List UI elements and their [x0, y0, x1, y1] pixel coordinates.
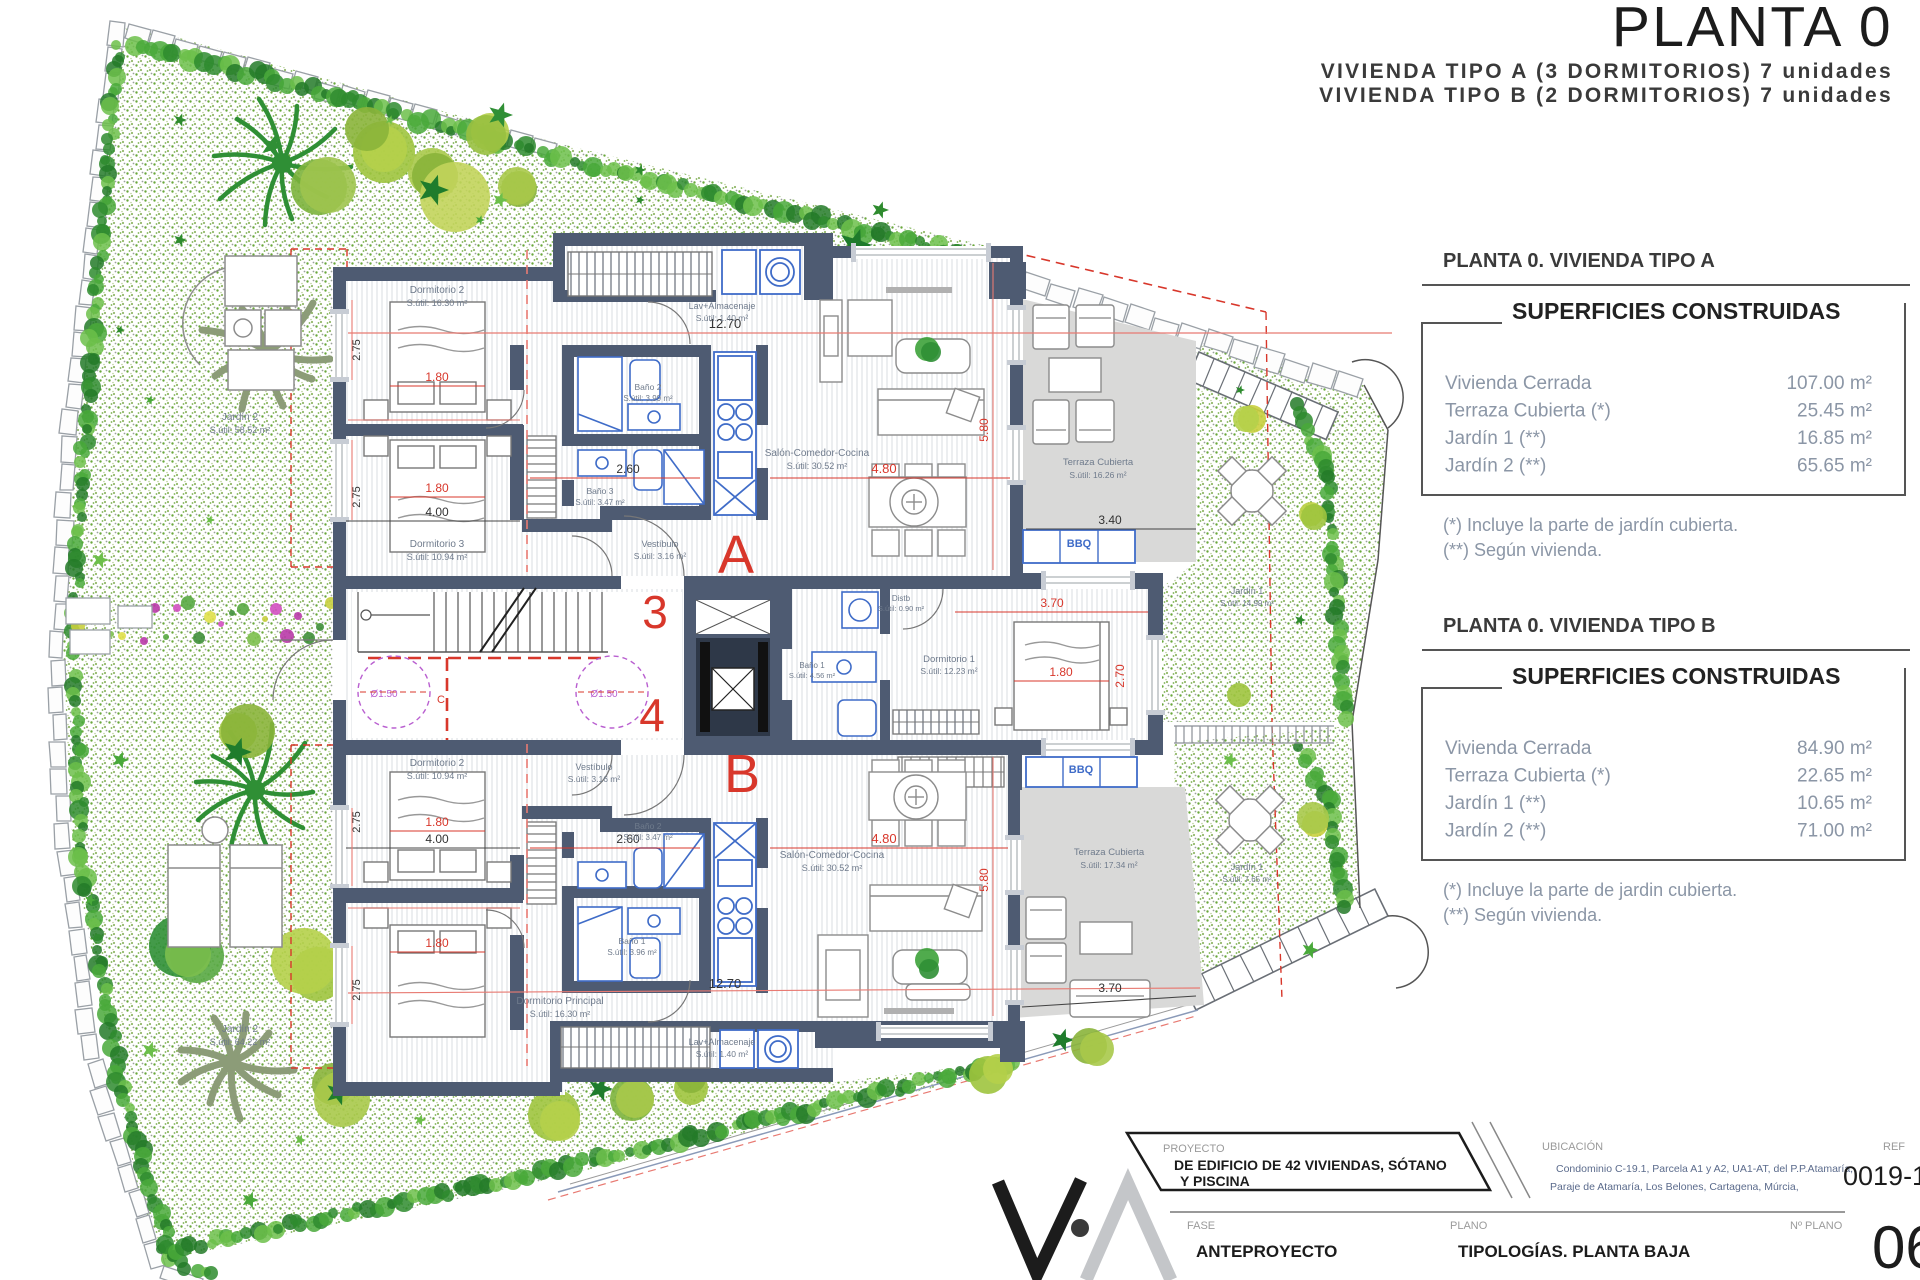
- svg-text:VIVIENDA TIPO A (3 DORMITORIOS: VIVIENDA TIPO A (3 DORMITORIOS) 7 unidad…: [1321, 60, 1893, 83]
- svg-text:2.60: 2.60: [616, 462, 640, 476]
- svg-text:Lav+Almacenaje: Lav+Almacenaje: [689, 301, 756, 311]
- svg-text:PLANTA 0. VIVIENDA TIPO B: PLANTA 0. VIVIENDA TIPO B: [1443, 615, 1716, 637]
- svg-text:3.70: 3.70: [1040, 596, 1064, 610]
- svg-text:A: A: [718, 525, 754, 585]
- svg-text:Vivienda Cerrada: Vivienda Cerrada: [1445, 373, 1592, 394]
- svg-text:VIVIENDA TIPO B (2 DORMITORIOS: VIVIENDA TIPO B (2 DORMITORIOS) 7 unidad…: [1319, 84, 1893, 107]
- svg-text:S.útil: 16.30 m²: S.útil: 16.30 m²: [407, 298, 468, 308]
- svg-text:SUPERFICIES CONSTRUIDAS: SUPERFICIES CONSTRUIDAS: [1512, 298, 1840, 324]
- svg-text:2.75: 2.75: [351, 811, 363, 832]
- svg-text:Jardín 2 (**): Jardín 2 (**): [1445, 821, 1546, 842]
- svg-text:Salón-Comedor-Cocina: Salón-Comedor-Cocina: [765, 448, 870, 459]
- svg-text:(**) Según vivienda.: (**) Según vivienda.: [1443, 540, 1602, 560]
- svg-text:S.útil: 3.99 m²: S.útil: 3.99 m²: [623, 394, 673, 403]
- svg-text:BBQ: BBQ: [1067, 538, 1092, 550]
- svg-text:S.útil: 3.47 m²: S.útil: 3.47 m²: [575, 498, 625, 507]
- svg-text:BBQ: BBQ: [1069, 764, 1094, 776]
- svg-text:S.útil: 16.26 m²: S.útil: 16.26 m²: [1069, 470, 1126, 480]
- svg-text:S.útil: 3.47 m²: S.útil: 3.47 m²: [623, 833, 673, 842]
- svg-text:Y PISCINA: Y PISCINA: [1180, 1173, 1250, 1189]
- svg-text:2.70: 2.70: [1113, 664, 1127, 688]
- svg-text:Terraza Cubierta: Terraza Cubierta: [1074, 847, 1145, 858]
- svg-text:S.útil: 16.30 m²: S.útil: 16.30 m²: [530, 1009, 591, 1019]
- svg-text:S.útil: 1.40 m²: S.útil: 1.40 m²: [696, 1049, 749, 1059]
- svg-text:S.útil: 12.23 m²: S.útil: 12.23 m²: [920, 666, 977, 676]
- svg-text:S.útil: 3.16 m²: S.útil: 3.16 m²: [568, 774, 621, 784]
- svg-text:Baño 1: Baño 1: [799, 661, 825, 670]
- svg-text:PLANTA 0: PLANTA 0: [1612, 0, 1893, 59]
- svg-text:C: C: [437, 694, 445, 706]
- svg-text:(**) Según vivienda.: (**) Según vivienda.: [1443, 905, 1602, 925]
- svg-text:S.útil: 7.65 m²: S.útil: 7.65 m²: [1222, 875, 1272, 884]
- svg-text:3.40: 3.40: [1098, 513, 1122, 527]
- svg-text:4.00: 4.00: [425, 505, 449, 519]
- svg-text:Dormitorio Principal: Dormitorio Principal: [516, 996, 603, 1007]
- svg-text:TIPOLOGÍAS. PLANTA BAJA: TIPOLOGÍAS. PLANTA BAJA: [1458, 1242, 1690, 1261]
- svg-text:Jardín 1: Jardín 1: [1231, 862, 1264, 872]
- svg-text:84.90 m²: 84.90 m²: [1797, 738, 1872, 759]
- svg-text:2.75: 2.75: [351, 339, 363, 360]
- svg-text:Vestíbulo: Vestíbulo: [641, 539, 678, 549]
- svg-text:(*) Incluye la parte de jardí: (*) Incluye la parte de jardín cubierta.: [1443, 515, 1738, 535]
- svg-text:(*) Incluye la parte de jardin: (*) Incluye la parte de jardin cubierta.: [1443, 880, 1737, 900]
- svg-text:Lav+Almacenaje: Lav+Almacenaje: [689, 1037, 756, 1047]
- svg-text:5.80: 5.80: [977, 418, 991, 442]
- svg-text:3: 3: [642, 586, 668, 638]
- svg-text:16.85 m²: 16.85 m²: [1797, 428, 1872, 449]
- svg-text:Baño 2: Baño 2: [635, 382, 662, 392]
- svg-text:Nº PLANO: Nº PLANO: [1790, 1220, 1843, 1232]
- svg-text:S.útil: 17.34 m²: S.útil: 17.34 m²: [1080, 860, 1137, 870]
- svg-text:S.útil: 30.52 m²: S.útil: 30.52 m²: [802, 863, 863, 873]
- svg-text:22.65 m²: 22.65 m²: [1797, 766, 1872, 787]
- svg-text:4.00: 4.00: [425, 832, 449, 846]
- svg-text:Dormitorio 1: Dormitorio 1: [923, 654, 975, 665]
- svg-text:B: B: [724, 744, 760, 804]
- svg-text:ANTEPROYECTO: ANTEPROYECTO: [1196, 1242, 1337, 1261]
- svg-text:5.80: 5.80: [977, 868, 991, 892]
- svg-text:4.80: 4.80: [871, 461, 896, 476]
- svg-text:1.80: 1.80: [425, 815, 449, 829]
- svg-text:Jardín 1 (**): Jardín 1 (**): [1445, 428, 1546, 449]
- svg-text:1.80: 1.80: [425, 481, 449, 495]
- svg-text:Jardín 2: Jardín 2: [222, 1024, 259, 1035]
- svg-text:S.útil: 64.22 m²: S.útil: 64.22 m²: [210, 1037, 271, 1047]
- svg-text:S.útil: 30.52 m²: S.útil: 30.52 m²: [787, 461, 848, 471]
- svg-text:FASE: FASE: [1187, 1220, 1215, 1232]
- svg-text:S.útil: 4.56 m²: S.útil: 4.56 m²: [789, 671, 836, 680]
- svg-text:S.útil: 0.90 m²: S.útil: 0.90 m²: [878, 604, 925, 613]
- svg-text:REF: REF: [1883, 1141, 1905, 1153]
- svg-text:Baño 3: Baño 3: [587, 486, 614, 496]
- svg-text:S.útil: 3.96 m²: S.útil: 3.96 m²: [607, 948, 657, 957]
- svg-text:PLANTA 0. VIVIENDA TIPO A: PLANTA 0. VIVIENDA TIPO A: [1443, 250, 1715, 272]
- svg-text:10.65 m²: 10.65 m²: [1797, 793, 1872, 814]
- svg-text:Dormitorio 2: Dormitorio 2: [410, 285, 465, 296]
- svg-text:S.útil: 1.40 m²: S.útil: 1.40 m²: [696, 313, 749, 323]
- svg-text:S.útil: 10.94 m²: S.útil: 10.94 m²: [407, 552, 468, 562]
- svg-text:Jardín 1: Jardín 1: [1231, 586, 1264, 596]
- svg-text:12.70: 12.70: [709, 976, 742, 991]
- svg-text:UBICACIÓN: UBICACIÓN: [1542, 1140, 1603, 1153]
- svg-text:Baño 2: Baño 2: [635, 821, 662, 831]
- svg-text:3.70: 3.70: [1098, 981, 1122, 995]
- svg-text:Jardín 1 (**): Jardín 1 (**): [1445, 793, 1546, 814]
- svg-text:1.80: 1.80: [425, 370, 449, 384]
- svg-text:Terraza Cubierta (*): Terraza Cubierta (*): [1445, 766, 1611, 787]
- svg-text:2.75: 2.75: [351, 486, 363, 507]
- svg-text:65.65 m²: 65.65 m²: [1797, 456, 1872, 477]
- svg-text:PLANO: PLANO: [1450, 1220, 1488, 1232]
- svg-text:4.80: 4.80: [871, 831, 896, 846]
- svg-text:Condominio C-19.1, Parcela A1: Condominio C-19.1, Parcela A1 y A2, UA1-…: [1556, 1163, 1853, 1175]
- svg-text:1.80: 1.80: [1049, 665, 1073, 679]
- svg-text:Dormitorio 3: Dormitorio 3: [410, 539, 465, 550]
- svg-text:Distb: Distb: [892, 594, 911, 603]
- svg-text:4: 4: [639, 689, 665, 741]
- svg-text:DE EDIFICIO DE 42 VIVIENDAS, S: DE EDIFICIO DE 42 VIVIENDAS, SÓTANO: [1174, 1156, 1447, 1173]
- svg-text:Baño 1: Baño 1: [619, 936, 646, 946]
- svg-text:Ø1.50: Ø1.50: [590, 689, 618, 700]
- svg-text:Terraza Cubierta (*): Terraza Cubierta (*): [1445, 401, 1611, 422]
- svg-text:S.útil: 10.94 m²: S.útil: 10.94 m²: [407, 771, 468, 781]
- svg-text:S.útil: 58.52 m²: S.útil: 58.52 m²: [210, 425, 271, 435]
- svg-text:Vivienda Cerrada: Vivienda Cerrada: [1445, 738, 1592, 759]
- svg-text:PROYECTO: PROYECTO: [1163, 1143, 1225, 1155]
- svg-text:25.45 m²: 25.45 m²: [1797, 401, 1872, 422]
- svg-text:Jardín 2: Jardín 2: [222, 412, 259, 423]
- svg-text:0019-1: 0019-1: [1843, 1161, 1920, 1191]
- svg-text:06: 06: [1872, 1214, 1920, 1280]
- svg-text:Jardín 2 (**): Jardín 2 (**): [1445, 456, 1546, 477]
- svg-text:S.útil: 14.99 m²: S.útil: 14.99 m²: [1220, 599, 1274, 608]
- svg-text:Terraza Cubierta: Terraza Cubierta: [1063, 457, 1134, 468]
- svg-text:1.80: 1.80: [425, 936, 449, 950]
- svg-text:S.útil: 3.16 m²: S.útil: 3.16 m²: [634, 551, 687, 561]
- svg-text:Salón-Comedor-Cocina: Salón-Comedor-Cocina: [780, 850, 885, 861]
- svg-text:107.00 m²: 107.00 m²: [1786, 373, 1872, 394]
- svg-text:Vestíbulo: Vestíbulo: [575, 762, 612, 772]
- svg-text:Dormitorio 2: Dormitorio 2: [410, 758, 465, 769]
- svg-text:Paraje de Atamaría, Los Belone: Paraje de Atamaría, Los Belones, Cartage…: [1550, 1181, 1799, 1193]
- svg-text:2.75: 2.75: [351, 979, 363, 1000]
- svg-text:71.00 m²: 71.00 m²: [1797, 821, 1872, 842]
- svg-text:Ø1.50: Ø1.50: [370, 689, 398, 700]
- svg-text:SUPERFICIES CONSTRUIDAS: SUPERFICIES CONSTRUIDAS: [1512, 663, 1840, 689]
